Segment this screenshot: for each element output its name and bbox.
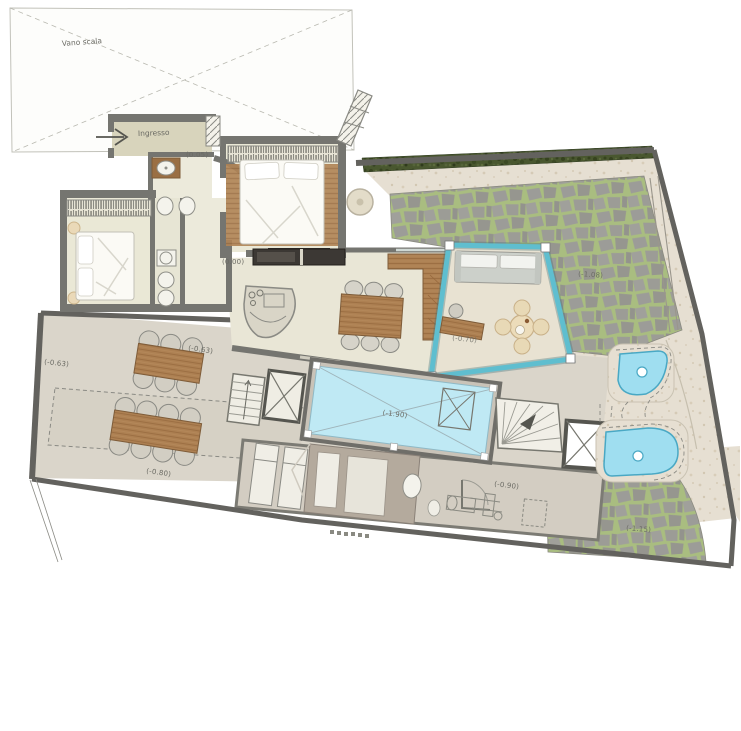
terrace-table-upper	[132, 329, 206, 397]
entrance-level: (0.05)	[186, 151, 208, 159]
floor-plan-drawing: Vano scala Ingresso (0.05)	[0, 0, 741, 731]
entrance-label: Ingresso	[138, 128, 170, 138]
stair-left	[227, 374, 265, 426]
frame-corner	[541, 243, 550, 252]
pond-jet	[633, 451, 643, 461]
pond-jet	[637, 367, 647, 377]
pond-lower	[596, 420, 688, 482]
bed-left-bedroom	[68, 222, 134, 304]
bathroom1-fixtures	[152, 158, 180, 178]
wardrobe-bedroom-left	[67, 200, 151, 216]
sofa	[455, 251, 542, 284]
bed-top-bedroom	[226, 160, 338, 257]
survey-extension-lines	[30, 479, 62, 562]
storage-room	[292, 444, 420, 524]
drain-grate	[330, 530, 369, 538]
frame-corner	[445, 241, 454, 250]
living-level: (0.00)	[222, 258, 244, 266]
kitchen-counter	[253, 249, 345, 265]
dining-table	[338, 280, 405, 353]
pond-upper	[608, 344, 674, 402]
floor-plan-canvas: Vano scala Ingresso (0.05)	[0, 0, 741, 731]
skylight-shaft	[263, 370, 305, 422]
tree	[347, 189, 373, 215]
winder-stair	[496, 398, 562, 452]
masonry-pier	[206, 116, 220, 146]
frame-corner	[566, 354, 575, 363]
